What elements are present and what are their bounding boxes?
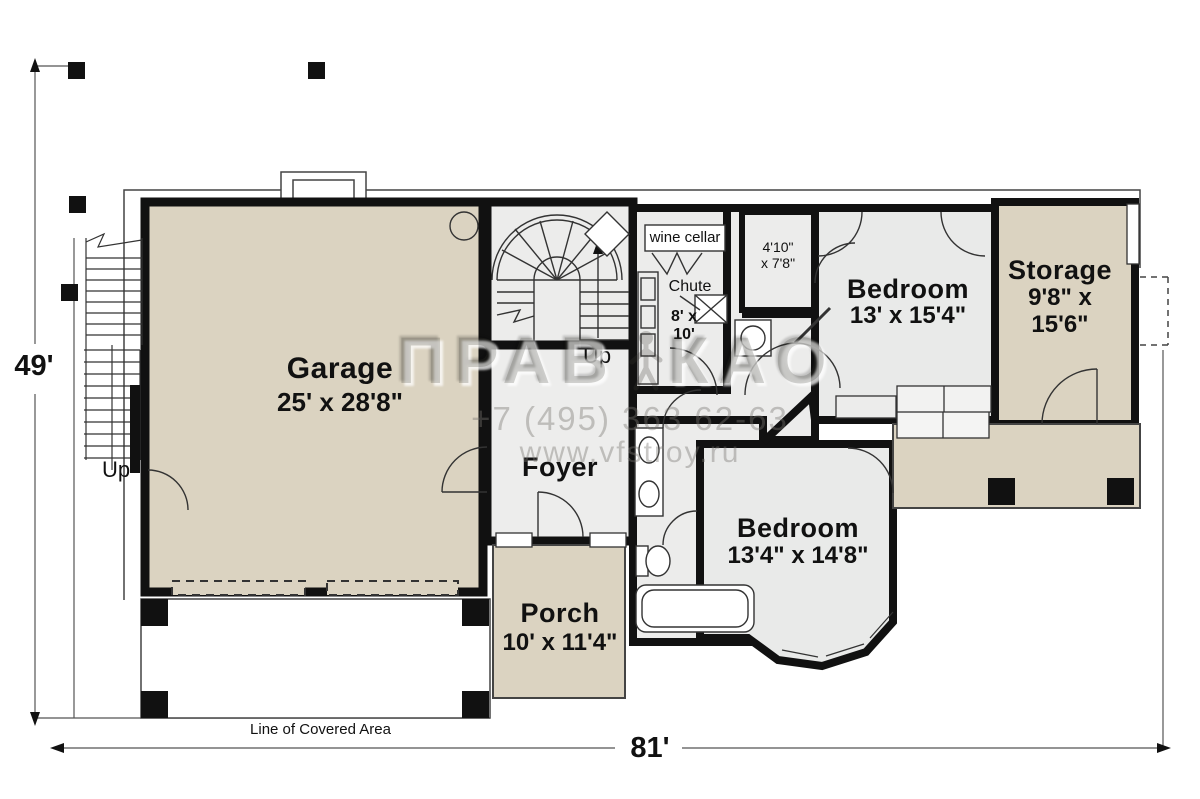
porch-label: Porch [505,598,615,628]
chute-label: Chute [660,278,720,296]
bedroom-lower-dims: 13'4" x 14'8" [722,543,874,570]
storage-dims: 9'8" x 15'6" [1005,285,1115,339]
garage-dims: 25' x 28'8" [240,388,440,417]
overall-width-dimension: 81' [620,732,680,764]
up-interior-label: Up [576,344,618,369]
garage-label: Garage [245,352,435,386]
up-exterior-label: Up [96,458,136,483]
floor-plan-drawing [0,0,1200,799]
wine-cellar-dims: 8' x 10' [658,308,710,344]
floor-plan-page: 49' 81' Garage 25' x 28'8" Foyer Porch 1… [0,0,1200,799]
covered-area [141,599,490,718]
bedroom-upper-dims: 13' x 15'4" [833,303,983,330]
covered-area-label: Line of Covered Area [238,722,403,739]
porch-dims: 10' x 11'4" [492,630,628,657]
overall-height-dimension: 49' [10,350,58,382]
wine-cellar-label: wine cellar [645,230,725,247]
storage-dashed-lines [1140,277,1168,345]
closet-dims: 4'10" x 7'8" [748,240,808,271]
bedroom-lower-label: Bedroom [728,513,868,543]
bedroom-upper-label: Bedroom [838,274,978,304]
exterior-stair [84,234,142,473]
foyer-label: Foyer [505,452,615,482]
storage-label: Storage [1000,255,1120,285]
